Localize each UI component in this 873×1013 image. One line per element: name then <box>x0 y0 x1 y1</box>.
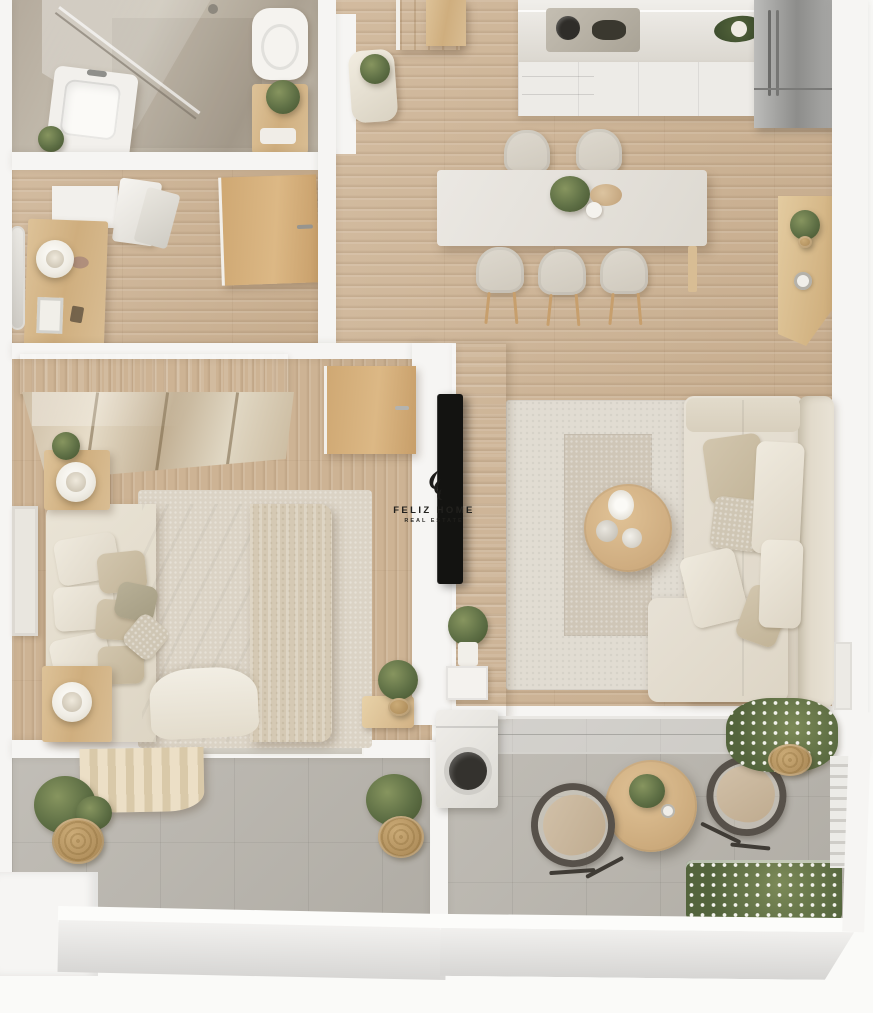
sink-basin <box>59 79 121 141</box>
fridge-handle-2 <box>776 10 779 96</box>
dining-chair-top-2 <box>576 129 622 173</box>
bathroom-entry-wall <box>12 152 334 170</box>
floor-plan-render: FELIZ HOME REAL ESTATE <box>0 0 873 1013</box>
entry-stool-plant <box>360 54 390 84</box>
watermark: FELIZ HOME REAL ESTATE <box>388 470 480 524</box>
entry-wall-mirror <box>10 226 25 330</box>
coffee-table-flowers <box>608 490 634 520</box>
fridge-divider <box>754 88 832 90</box>
refrigerator <box>754 0 832 128</box>
kitchen-tall-cabinet <box>426 0 466 46</box>
bedroom-corner-plant <box>378 660 418 700</box>
bedroom-door-handle <box>395 406 409 410</box>
lounge-chair-right-leg-2 <box>730 842 770 850</box>
bathroom-door <box>218 174 320 285</box>
bistro-table-cup <box>661 804 675 818</box>
table-vase-2 <box>604 206 617 219</box>
feliz-home-flame-logo <box>422 470 446 502</box>
dining-chair-bottom-2 <box>538 249 586 295</box>
bathroom-hallway-wall <box>318 0 336 350</box>
towel-folded <box>260 128 296 144</box>
media-shelf-plant <box>448 606 488 646</box>
washer-door <box>449 752 487 790</box>
vanity-plant <box>38 126 64 152</box>
bedroom-corner-plant-pot <box>388 698 410 716</box>
console-picture-frame <box>36 297 63 334</box>
window-ledge <box>834 642 852 710</box>
toilet <box>252 8 308 80</box>
nightstand-plant <box>52 432 80 460</box>
balcony-pot-right <box>378 816 424 858</box>
parapet-left-face <box>57 920 446 980</box>
dining-chair-top-1 <box>504 130 550 174</box>
console-decor-letters <box>70 305 85 323</box>
wall-art-frame <box>12 506 38 636</box>
dining-chair-bottom-1 <box>476 247 524 293</box>
outer-left-wall <box>0 0 12 940</box>
watermark-brand: FELIZ HOME <box>393 505 475 516</box>
bistro-table-plant <box>629 774 665 808</box>
sideboard-plant-pot <box>798 236 812 248</box>
terrace-flower-pot <box>768 744 812 776</box>
mirror-reflection-streak <box>32 386 292 426</box>
entry-table-lamp <box>36 240 74 278</box>
serving-bowl-egg <box>730 20 748 38</box>
parapet-right-face <box>440 928 854 980</box>
terrace-flower-bed <box>686 860 842 920</box>
table-vase-1 <box>586 202 602 218</box>
pan-right <box>592 20 626 40</box>
bed-knit-throw <box>250 504 332 742</box>
media-shelf-box <box>446 666 488 700</box>
nightstand-lamp-bottom <box>52 682 92 722</box>
drawer-line-1 <box>522 76 594 77</box>
table-centerpiece-plant <box>550 176 590 212</box>
dining-chair-bottom-3 <box>600 248 648 294</box>
washer-panel-line <box>436 726 498 728</box>
sofa-pillow-3 <box>751 441 805 555</box>
washing-machine <box>436 710 498 808</box>
coffee-table-vase-1 <box>596 520 618 542</box>
wardrobe-top-frame <box>20 354 288 394</box>
shower-drain <box>208 4 218 14</box>
entry-console-table <box>24 219 108 350</box>
terrace-glass-railing <box>497 716 737 754</box>
cooktop <box>546 8 640 52</box>
sideboard-cup <box>794 272 812 290</box>
sofa-pillow-6 <box>758 539 803 628</box>
media-shelf-plant-pot <box>458 642 478 666</box>
kitchen-base-cabinets <box>518 62 756 116</box>
bathroom-plant <box>266 80 300 114</box>
bed-duvet-fold <box>148 665 260 741</box>
dining-table-leg <box>688 246 697 292</box>
fridge-handle-1 <box>768 10 771 96</box>
watermark-tagline: REAL ESTATE <box>404 518 463 524</box>
sofa-backrest <box>798 396 834 708</box>
drawer-line-2 <box>522 94 594 95</box>
round-coffee-table <box>584 484 672 572</box>
nightstand-lamp-top <box>56 462 96 502</box>
coffee-table-vase-2 <box>622 528 642 548</box>
bedroom-door <box>324 366 416 454</box>
faucet <box>87 69 108 77</box>
bathroom-door-handle <box>297 224 313 229</box>
kitchen-countertop <box>518 0 756 62</box>
balcony-pot-left <box>52 818 104 864</box>
pan-left <box>556 16 580 40</box>
toilet-seat <box>261 24 299 70</box>
